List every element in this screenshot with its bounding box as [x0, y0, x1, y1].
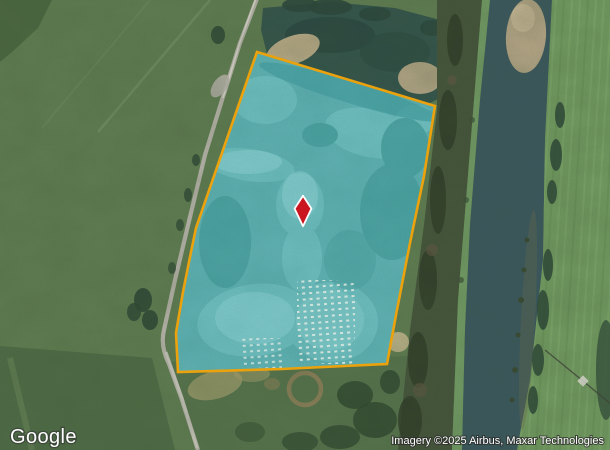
attribution-text: Imagery ©2025 Airbus, Maxar Technologies [391, 435, 604, 447]
google-logo[interactable]: Google [10, 426, 77, 448]
image-grain [0, 0, 610, 450]
map-canvas[interactable]: Google Imagery ©2025 Airbus, Maxar Techn… [0, 0, 610, 450]
